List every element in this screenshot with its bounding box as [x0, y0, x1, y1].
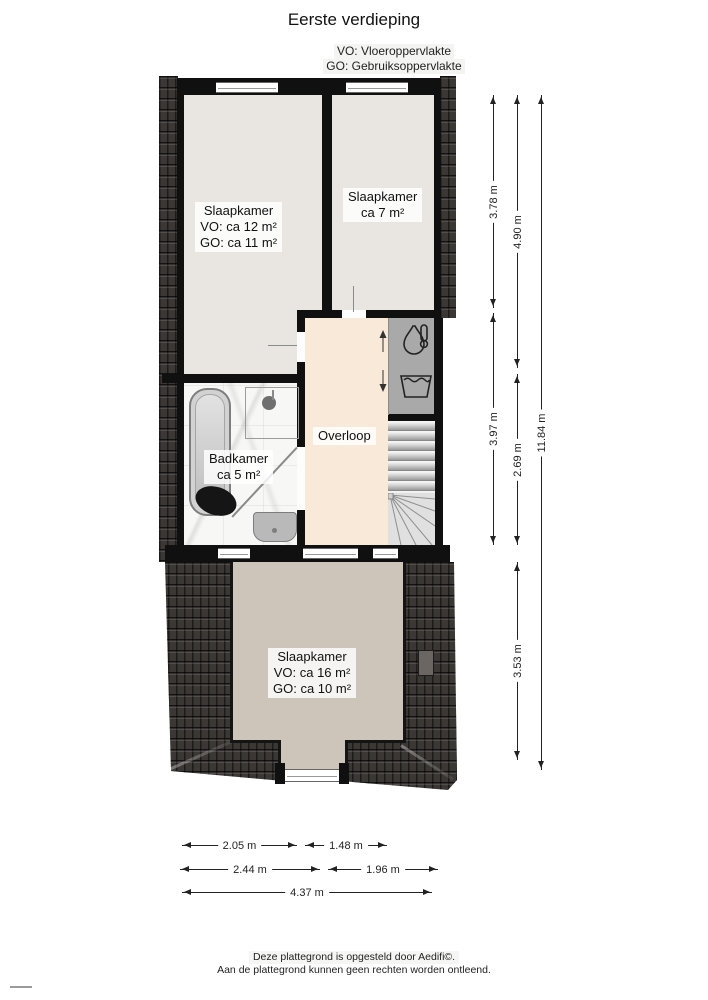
- bedroom-bottom-go: GO: ca 10 m²: [273, 681, 351, 696]
- landing-name: Overloop: [318, 428, 371, 443]
- window-mid-right: [373, 548, 398, 559]
- dim-353: 3.53 m: [517, 562, 518, 760]
- bathroom-size: ca 5 m²: [217, 467, 260, 482]
- roof-strip-right-top: [440, 76, 456, 318]
- dim-397-label: 3.97 m: [488, 408, 500, 450]
- door-bedroomleft-landing: [297, 332, 305, 362]
- wall-bathroom-top: [162, 374, 303, 383]
- bedroom-right-name: Slaapkamer: [348, 189, 417, 204]
- laundry-tub-icon: [399, 371, 433, 399]
- dim-437: 4.37 m: [182, 892, 432, 893]
- roof-window-detail: [418, 650, 434, 676]
- wall-right-outer-top: [434, 78, 441, 318]
- bay-pier-left: [275, 763, 285, 784]
- footer-line2: Aan de plattegrond kunnen geen rechten w…: [217, 964, 491, 976]
- dim-1184-label: 11.84 m: [536, 409, 548, 456]
- wall-left-outer: [177, 78, 184, 562]
- door-leaf-bedroomleft: [268, 345, 297, 346]
- floorplan-page: Eerste verdieping VO: Vloeroppervlakte G…: [0, 0, 708, 1000]
- window-mid-left: [218, 548, 250, 559]
- dim-397: 3.97 m: [493, 313, 494, 545]
- dim-244: 2.44 m: [180, 869, 320, 870]
- dim-196: 1.96 m: [328, 869, 438, 870]
- dim-205-label: 2.05 m: [218, 840, 262, 852]
- footer-line1: Deze plattegrond is opgesteld door Aedif…: [249, 951, 459, 964]
- roof-strip-left: [159, 76, 178, 562]
- dim-490: 4.90 m: [517, 95, 518, 368]
- dim-1184: 11.84 m: [541, 95, 542, 770]
- door-bathroom: [297, 447, 305, 510]
- door-bedroomright-landing: [342, 310, 366, 318]
- dim-205: 2.05 m: [182, 845, 297, 846]
- window-bedroom-left: [216, 82, 278, 93]
- dim-269: 2.69 m: [517, 374, 518, 545]
- bedroom-bottom-vo: VO: ca 16 m²: [274, 665, 351, 680]
- stairs-up-arrow-icon: [378, 330, 388, 354]
- dim-196-label: 1.96 m: [361, 864, 405, 876]
- footer-disclaimer: Deze plattegrond is opgesteld door Aedif…: [154, 951, 554, 977]
- water-heater-icon: [400, 323, 432, 359]
- window-bedroom-right: [346, 82, 408, 93]
- label-landing: Overloop: [313, 427, 376, 445]
- dim-378-label: 3.78 m: [488, 181, 500, 223]
- bedroom-left-vo: VO: ca 12 m²: [200, 219, 277, 234]
- label-bedroom-right: Slaapkamer ca 7 m²: [343, 188, 422, 222]
- staircase: [388, 421, 435, 493]
- bedroom-right-size: ca 7 m²: [361, 205, 404, 220]
- shower-head-icon: [262, 396, 276, 410]
- shower-arm: [272, 390, 274, 400]
- dim-490-label: 4.90 m: [512, 211, 524, 253]
- bedroom-left-go: GO: ca 11 m²: [200, 235, 277, 250]
- dim-378: 3.78 m: [493, 95, 494, 308]
- door-leaf-bedroomright: [353, 286, 354, 312]
- bedroom-bottom-name: Slaapkamer: [277, 649, 346, 664]
- label-bedroom-left: Slaapkamer VO: ca 12 m² GO: ca 11 m²: [195, 202, 282, 252]
- legend-vo: VO: Vloeroppervlakte: [334, 44, 454, 59]
- label-bedroom-bottom: Slaapkamer VO: ca 16 m² GO: ca 10 m²: [268, 648, 356, 698]
- dim-244-label: 2.44 m: [228, 864, 272, 876]
- bay-pier-right: [339, 763, 349, 784]
- legend-go: GO: Gebruiksoppervlakte: [323, 59, 464, 74]
- legend: VO: Vloeroppervlakte GO: Gebruiksoppervl…: [254, 44, 534, 74]
- wall-landing-top: [297, 310, 441, 318]
- wall-utility-bottom: [388, 414, 435, 421]
- dim-148: 1.48 m: [305, 845, 387, 846]
- stairs-down-arrow-icon: [378, 368, 388, 392]
- window-bay: [285, 769, 339, 782]
- utility-partition-line: [388, 318, 389, 415]
- bathroom-name: Badkamer: [209, 451, 268, 466]
- window-landing-south: [303, 548, 358, 559]
- wall-right-outer-mid: [434, 318, 443, 545]
- dim-269-label: 2.69 m: [512, 439, 524, 481]
- dim-148-label: 1.48 m: [324, 840, 368, 852]
- sink: [253, 512, 297, 542]
- staircase-winder: [388, 493, 435, 545]
- bedroom-left-name: Slaapkamer: [204, 203, 273, 218]
- label-bathroom: Badkamer ca 5 m²: [204, 450, 273, 484]
- wall-bedroom-divider: [322, 95, 332, 310]
- micro-print-text: [10, 986, 32, 988]
- page-title: Eerste verdieping: [0, 10, 708, 30]
- dim-437-label: 4.37 m: [285, 887, 329, 899]
- dim-353-label: 3.53 m: [512, 640, 524, 682]
